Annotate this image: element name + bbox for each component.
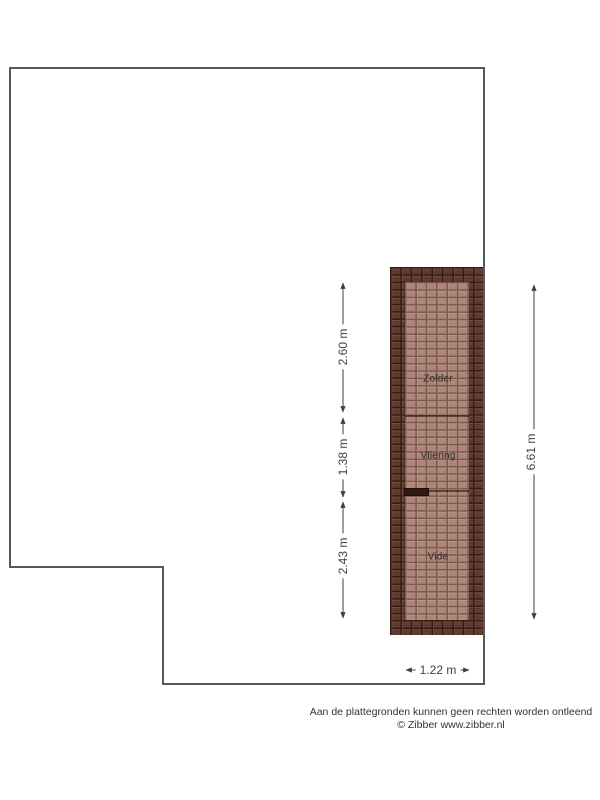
dimension-label-vide-height: 2.43 m — [336, 534, 350, 579]
separator-zolder-vliering — [405, 415, 469, 417]
dimension-label-vliering-height: 1.38 m — [336, 435, 350, 480]
footer-credit: © Zibber www.zibber.nl — [308, 719, 594, 732]
floorplan-page: Zolder Vliering Vide 2.60 m 1.38 m 2.43 … — [0, 0, 600, 800]
room-label-vide: Vide — [428, 552, 449, 563]
footer: Aan de plattegronden kunnen geen rechten… — [308, 706, 594, 732]
dimension-label-zolder-height: 2.60 m — [336, 325, 350, 370]
room-label-vliering: Vliering — [421, 451, 456, 462]
floor-hatch-marker — [404, 488, 429, 496]
dimension-label-width: 1.22 m — [416, 663, 461, 677]
room-label-zolder: Zolder — [423, 374, 453, 385]
dimension-label-total-height: 6.61 m — [524, 430, 538, 475]
floorplan-canvas — [0, 0, 600, 800]
footer-disclaimer: Aan de plattegronden kunnen geen rechten… — [308, 706, 594, 719]
